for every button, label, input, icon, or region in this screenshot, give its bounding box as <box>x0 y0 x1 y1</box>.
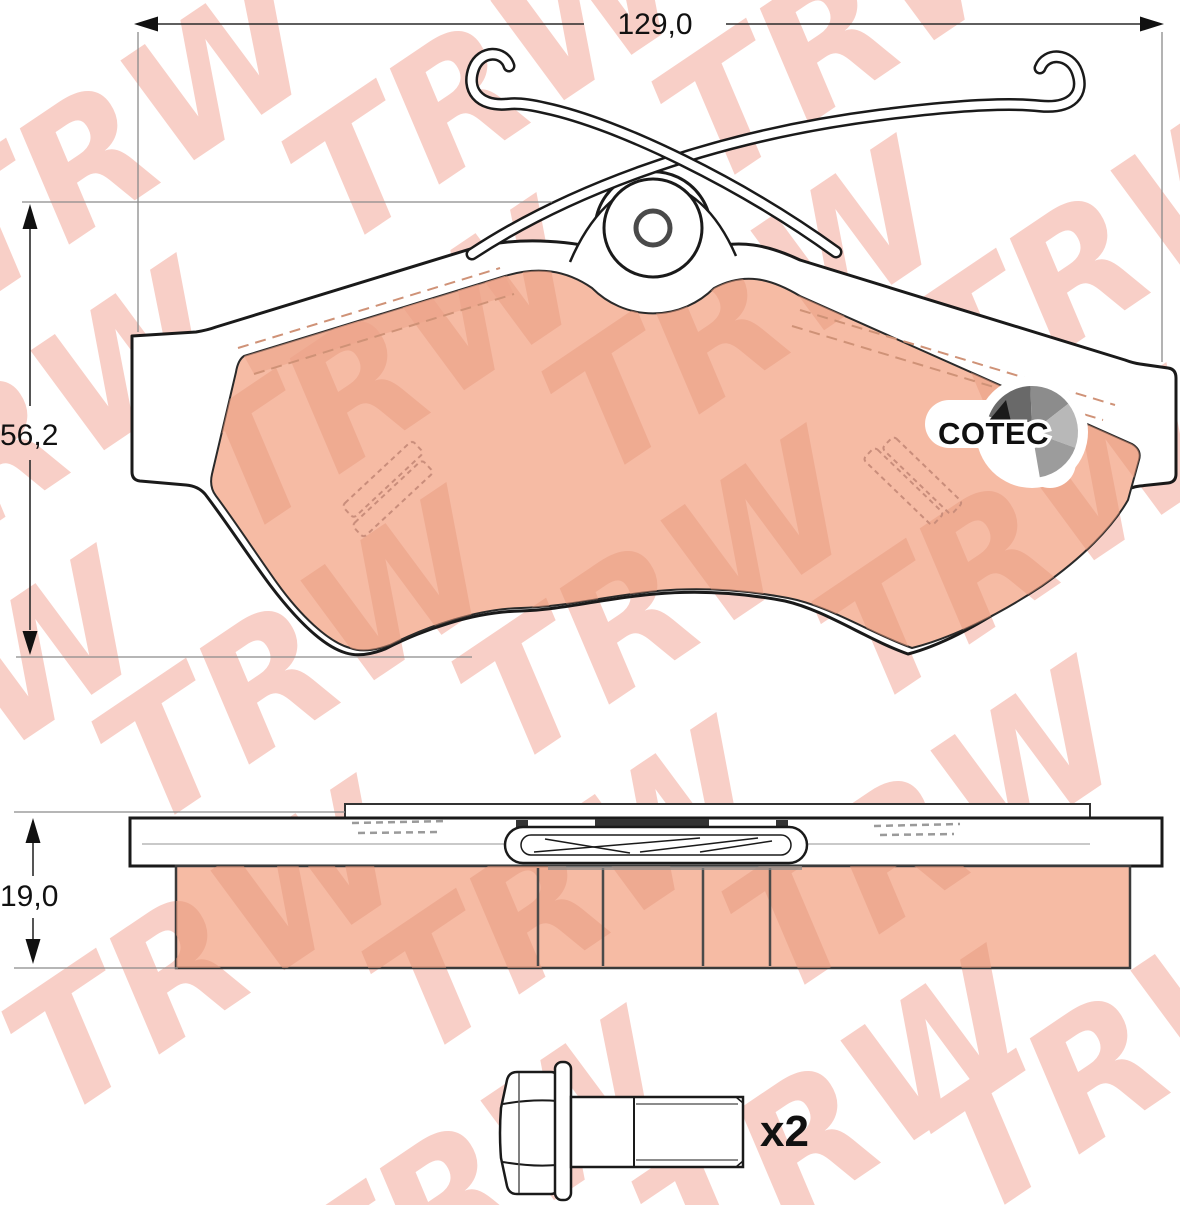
arrow-right-icon <box>1140 17 1164 32</box>
boss-hole <box>636 211 670 245</box>
spring-clip-side <box>505 819 807 868</box>
bolt-flange <box>555 1062 571 1200</box>
cotec-logo-text: COTEC <box>938 416 1049 451</box>
clip-body <box>505 827 807 863</box>
width-dimension-label: 129,0 <box>617 8 692 41</box>
bolt-quantity-label: x2 <box>760 1107 809 1156</box>
thickness-dimension-label: 19,0 <box>0 880 58 913</box>
height-dimension-label: 56,2 <box>0 419 58 452</box>
technical-drawing-canvas: TRW TRW TRW TRW TRW TRW TRW TRW TRW TRW … <box>0 0 1180 1205</box>
bolt-hex-head <box>500 1072 557 1194</box>
arrow-up-icon <box>26 818 41 843</box>
bolt-shank <box>571 1097 743 1167</box>
